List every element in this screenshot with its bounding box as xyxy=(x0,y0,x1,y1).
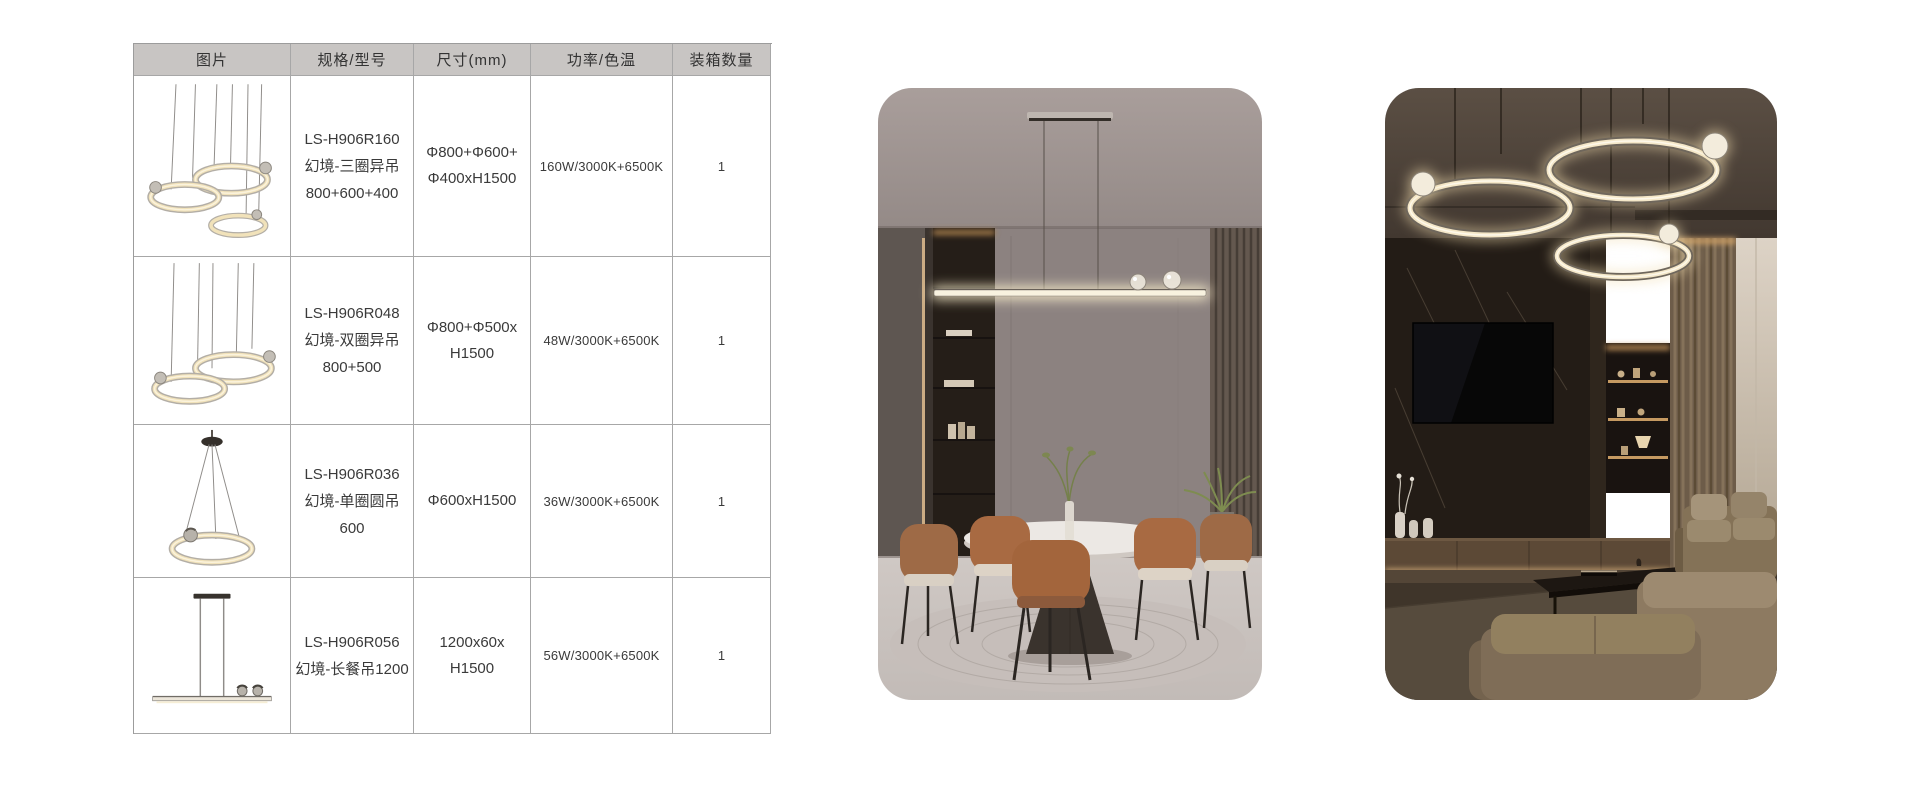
qty-cell: 1 xyxy=(673,76,771,257)
product-image-cell xyxy=(134,425,291,578)
header-qty: 装箱数量 xyxy=(673,44,771,76)
power-cell: 36W/3000K+6500K xyxy=(531,425,673,578)
table-row: LS-H906R160 幻境-三圈异吊 800+600+400 Φ800+Φ60… xyxy=(134,76,772,257)
header-image: 图片 xyxy=(134,44,291,76)
model-cell: LS-H906R048 幻境-双圈异吊 800+500 xyxy=(291,257,414,425)
three-ring-pendant-image xyxy=(139,81,285,251)
power-cell: 48W/3000K+6500K xyxy=(531,257,673,425)
living-room-scene xyxy=(1385,88,1777,700)
header-size: 尺寸(mm) xyxy=(414,44,531,76)
table-row: LS-H906R048 幻境-双圈异吊 800+500 Φ800+Φ500x H… xyxy=(134,257,772,425)
linear-bar-pendant-image xyxy=(139,582,285,730)
size-cell: 1200x60x H1500 xyxy=(414,578,531,734)
catalog-page: 图片 规格/型号 尺寸(mm) 功率/色温 装箱数量 xyxy=(0,0,1920,786)
living-room-photo xyxy=(1385,88,1777,700)
model-cell: LS-H906R036 幻境-单圈圆吊 600 xyxy=(291,425,414,578)
product-image-cell xyxy=(134,76,291,257)
dining-room-photo xyxy=(878,88,1262,700)
two-ring-pendant-image xyxy=(139,261,285,421)
size-cell: Φ600xH1500 xyxy=(414,425,531,578)
table-row: LS-H906R036 幻境-单圈圆吊 600 Φ600xH1500 36W/3… xyxy=(134,425,772,578)
product-image-cell xyxy=(134,578,291,734)
product-image-cell xyxy=(134,257,291,425)
table-header-row: 图片 规格/型号 尺寸(mm) 功率/色温 装箱数量 xyxy=(134,44,772,76)
model-cell: LS-H906R056 幻境-长餐吊1200 xyxy=(291,578,414,734)
size-cell: Φ800+Φ500x H1500 xyxy=(414,257,531,425)
header-power: 功率/色温 xyxy=(531,44,673,76)
power-cell: 160W/3000K+6500K xyxy=(531,76,673,257)
qty-cell: 1 xyxy=(673,257,771,425)
power-cell: 56W/3000K+6500K xyxy=(531,578,673,734)
table-row: LS-H906R056 幻境-长餐吊1200 1200x60x H1500 56… xyxy=(134,578,772,734)
dining-room-scene xyxy=(878,88,1262,700)
model-cell: LS-H906R160 幻境-三圈异吊 800+600+400 xyxy=(291,76,414,257)
header-model: 规格/型号 xyxy=(291,44,414,76)
product-spec-table: 图片 规格/型号 尺寸(mm) 功率/色温 装箱数量 xyxy=(133,43,772,734)
size-cell: Φ800+Φ600+ Φ400xH1500 xyxy=(414,76,531,257)
qty-cell: 1 xyxy=(673,578,771,734)
qty-cell: 1 xyxy=(673,425,771,578)
single-ring-pendant-image xyxy=(139,428,285,574)
